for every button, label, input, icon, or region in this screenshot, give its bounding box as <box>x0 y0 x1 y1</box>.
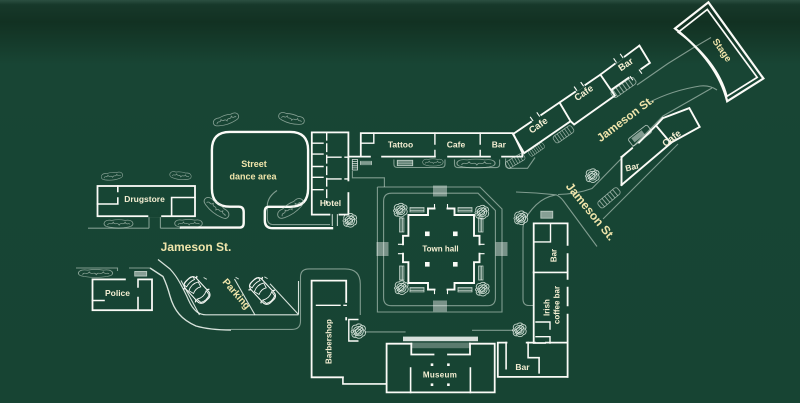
svg-text:Irish: Irish <box>543 299 552 316</box>
svg-text:Drugstore: Drugstore <box>124 194 165 204</box>
svg-text:Street: Street <box>241 159 267 169</box>
svg-text:Jameson St.: Jameson St. <box>161 240 232 254</box>
svg-text:Barbershop: Barbershop <box>325 319 334 364</box>
svg-text:coffee bar: coffee bar <box>553 286 562 324</box>
svg-text:Tattoo: Tattoo <box>388 139 413 149</box>
svg-text:Town hall: Town hall <box>422 245 458 254</box>
svg-text:Bar: Bar <box>515 362 530 372</box>
svg-text:dance area: dance area <box>229 172 277 182</box>
svg-text:Hotel: Hotel <box>320 198 341 208</box>
svg-text:Bar: Bar <box>550 249 559 262</box>
svg-text:Cafe: Cafe <box>447 139 466 149</box>
svg-text:Bar: Bar <box>492 139 507 149</box>
svg-text:Police: Police <box>105 288 130 298</box>
svg-text:Museum: Museum <box>423 370 457 379</box>
